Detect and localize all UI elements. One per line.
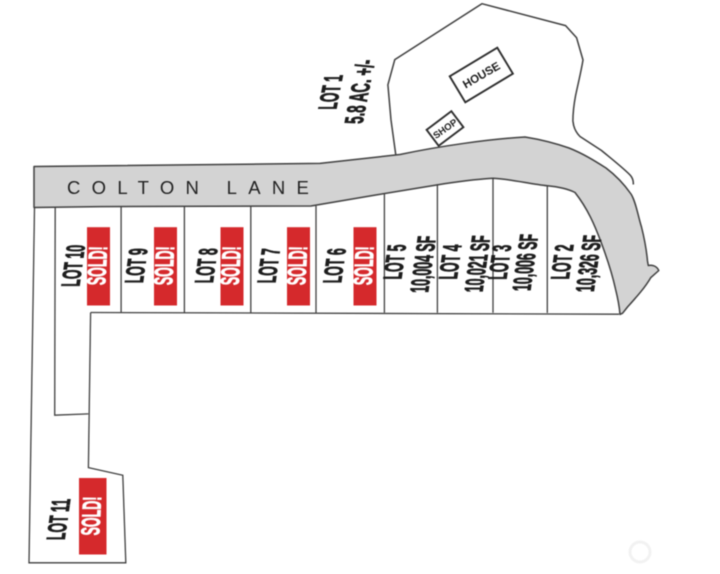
- svg-text:COLTON LANE: COLTON LANE: [67, 177, 320, 198]
- svg-text:LOT 6: LOT 6: [319, 248, 352, 283]
- svg-text:SOLD!: SOLD!: [350, 246, 380, 285]
- svg-text:LOT 5: LOT 5: [380, 245, 413, 280]
- svg-text:LOT 11: LOT 11: [43, 499, 77, 540]
- svg-text:LOT 7: LOT 7: [254, 248, 287, 283]
- svg-text:SOLD!: SOLD!: [77, 497, 107, 536]
- svg-text:SOLD!: SOLD!: [283, 246, 313, 285]
- svg-text:LOT 9: LOT 9: [121, 248, 154, 283]
- svg-text:SOLD!: SOLD!: [150, 246, 180, 285]
- svg-text:LOT 10: LOT 10: [58, 245, 92, 287]
- svg-text:LOT 8: LOT 8: [191, 248, 224, 283]
